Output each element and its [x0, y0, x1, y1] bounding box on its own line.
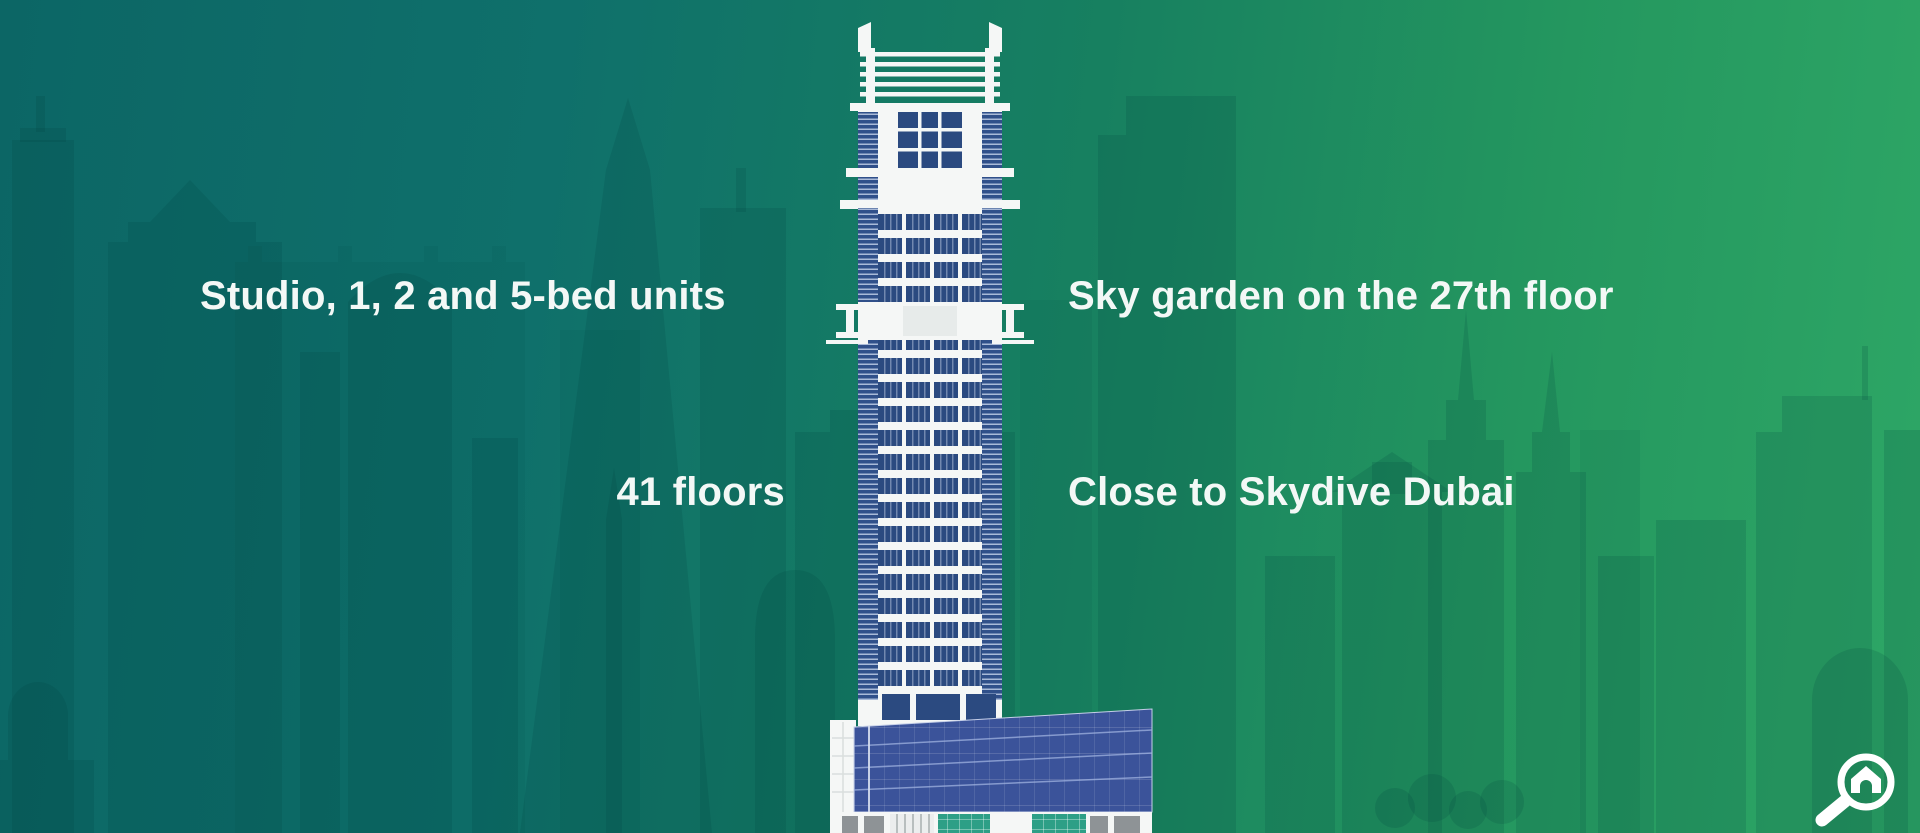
podium-ground-floor	[830, 812, 1152, 833]
feature-label-units: Studio, 1, 2 and 5-bed units	[200, 274, 726, 318]
tower-wing-right	[982, 208, 1002, 700]
feature-label-skydive: Close to Skydive Dubai	[1068, 470, 1515, 514]
tower-wing-left	[858, 208, 878, 700]
tower-crown	[858, 22, 1002, 105]
sky-garden-band	[826, 302, 1034, 344]
tower-floors	[878, 208, 982, 688]
feature-label-floors: 41 floors	[616, 470, 785, 514]
infographic-canvas: Studio, 1, 2 and 5-bed units Sky garden …	[0, 0, 1920, 833]
podium	[830, 709, 1152, 833]
feature-label-sky-garden: Sky garden on the 27th floor	[1068, 274, 1614, 318]
scene-graphic	[0, 0, 1920, 833]
